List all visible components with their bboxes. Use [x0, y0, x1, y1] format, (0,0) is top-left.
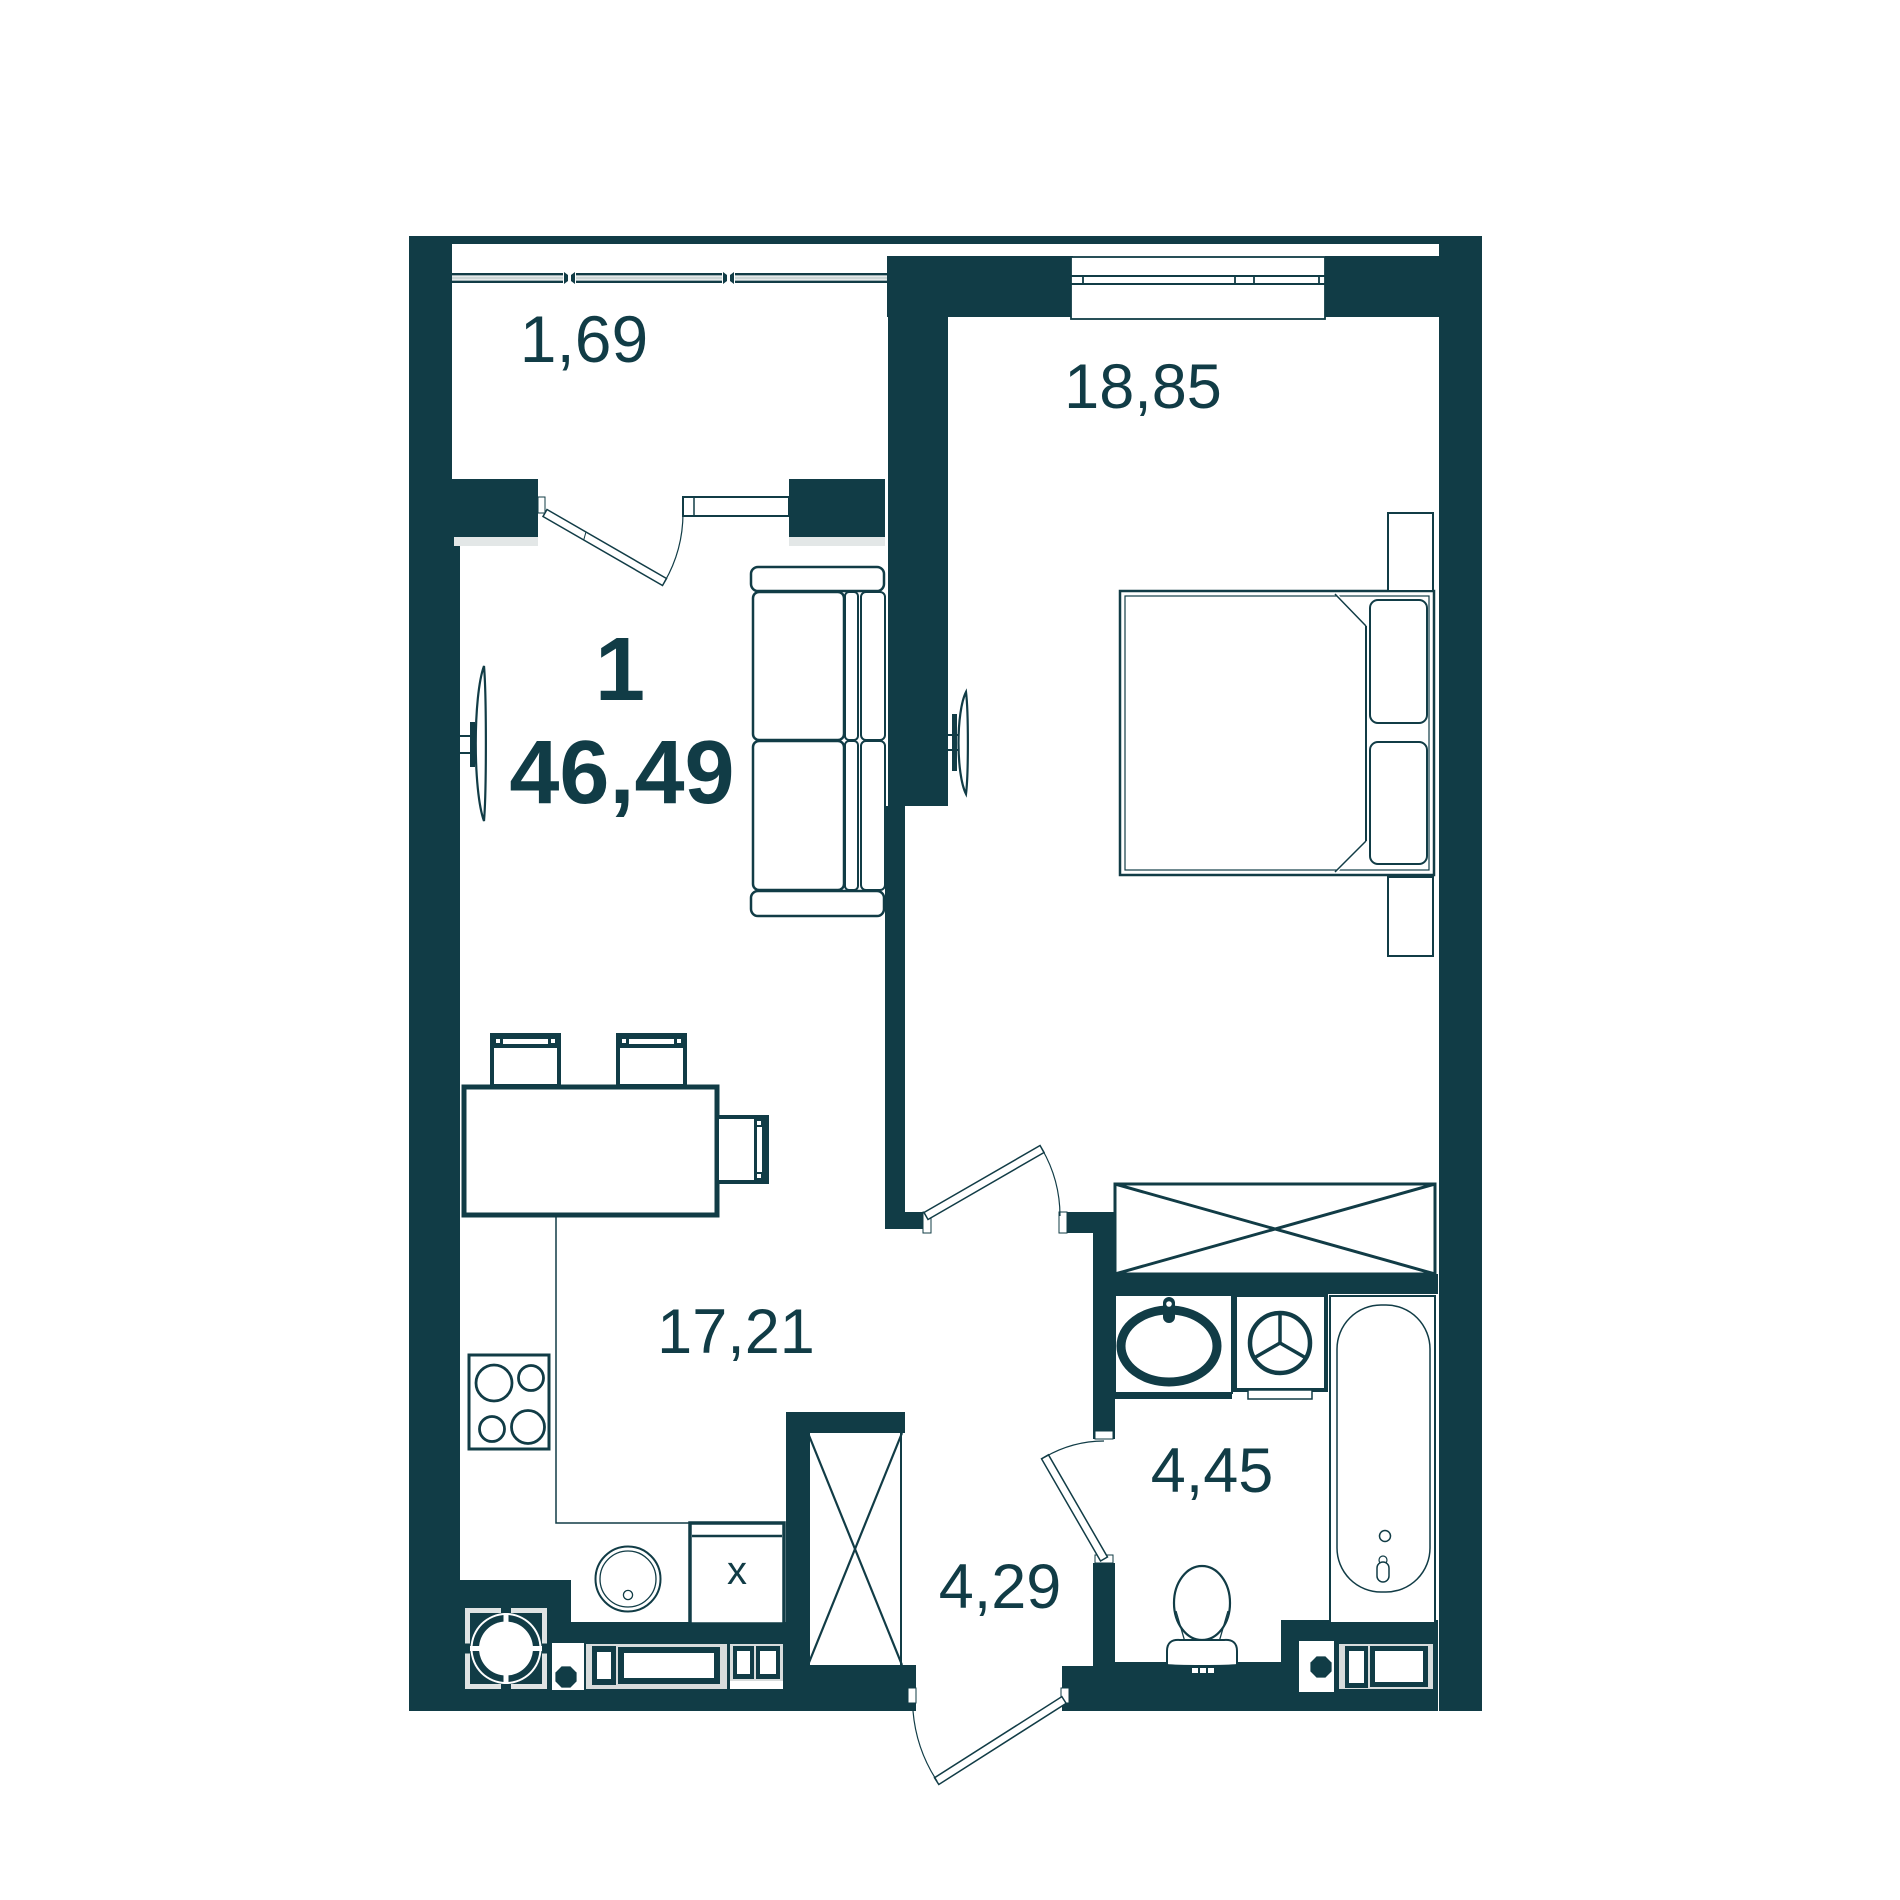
svg-text:46,49: 46,49 — [509, 723, 734, 823]
svg-text:4,45: 4,45 — [1151, 1436, 1274, 1506]
svg-text:4,29: 4,29 — [939, 1552, 1062, 1622]
svg-text:1: 1 — [595, 620, 645, 720]
svg-text:18,85: 18,85 — [1064, 352, 1222, 422]
svg-text:1,69: 1,69 — [520, 302, 648, 376]
svg-text:x: x — [727, 1549, 747, 1593]
svg-text:17,21: 17,21 — [657, 1297, 815, 1367]
